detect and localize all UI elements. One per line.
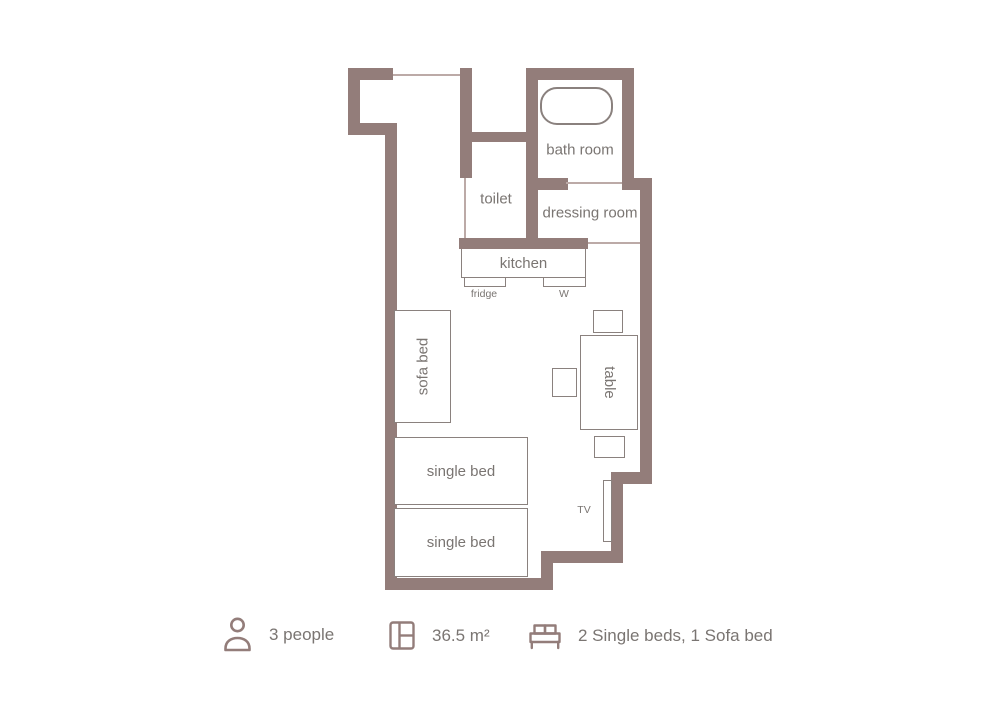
single-bed-top: single bed (394, 437, 528, 505)
dressing-top-line (566, 182, 622, 184)
fridge-box (464, 278, 506, 287)
bed-icon (527, 622, 564, 650)
sofa-bed: sofa bed (394, 310, 451, 423)
chair-top (593, 310, 623, 333)
single-bed-top-label: single bed (427, 463, 495, 480)
toilet-label: toilet (480, 191, 512, 208)
entrance-opening-line (393, 74, 460, 76)
wall-bathroom-left (526, 68, 538, 249)
kitchen-label: kitchen (500, 255, 548, 272)
floor-plan-canvas: kitchen sofa bed table single bed single… (0, 0, 1000, 707)
chair-bottom (594, 436, 625, 458)
chair-left (552, 368, 577, 397)
fridge-label: fridge (471, 288, 497, 300)
bathroom-label: bath room (546, 142, 614, 159)
legend-area: 36.5 m² (389, 621, 490, 650)
legend: 3 people 36.5 m² (0, 608, 1000, 668)
wall-right (640, 178, 652, 484)
legend-area-label: 36.5 m² (432, 626, 490, 646)
tv-label: TV (577, 504, 590, 516)
wall-bathroom-top (526, 68, 634, 80)
wall-bottom (385, 578, 553, 590)
single-bed-bottom-label: single bed (427, 534, 495, 551)
wall-right-step-vertical (611, 472, 623, 563)
sofa-bed-label: sofa bed (414, 338, 431, 396)
toilet-door-line (464, 178, 466, 238)
legend-occupancy: 3 people (222, 616, 334, 653)
dining-table: table (580, 335, 638, 430)
dressing-room-label: dressing room (542, 205, 637, 222)
table-label: table (601, 366, 618, 399)
legend-beds-label: 2 Single beds, 1 Sofa bed (578, 626, 773, 646)
wall-kitchen-top (459, 238, 588, 249)
legend-occupancy-label: 3 people (269, 625, 334, 645)
floor-plan-icon (389, 621, 415, 650)
wall-bathroom-right (622, 68, 634, 190)
wall-bathroom-dressing-divider (526, 178, 568, 190)
kitchen-counter: kitchen (461, 249, 586, 278)
bathtub (540, 87, 613, 125)
wall-toilet-top (460, 132, 526, 142)
person-icon (222, 616, 253, 653)
washer-label: W (559, 288, 569, 300)
tv-unit (603, 480, 612, 542)
legend-beds: 2 Single beds, 1 Sofa bed (527, 622, 773, 650)
single-bed-bottom: single bed (394, 508, 528, 577)
dressing-bottom-line (588, 242, 640, 244)
wall-toilet-left (460, 68, 472, 178)
washer-box (543, 278, 586, 287)
